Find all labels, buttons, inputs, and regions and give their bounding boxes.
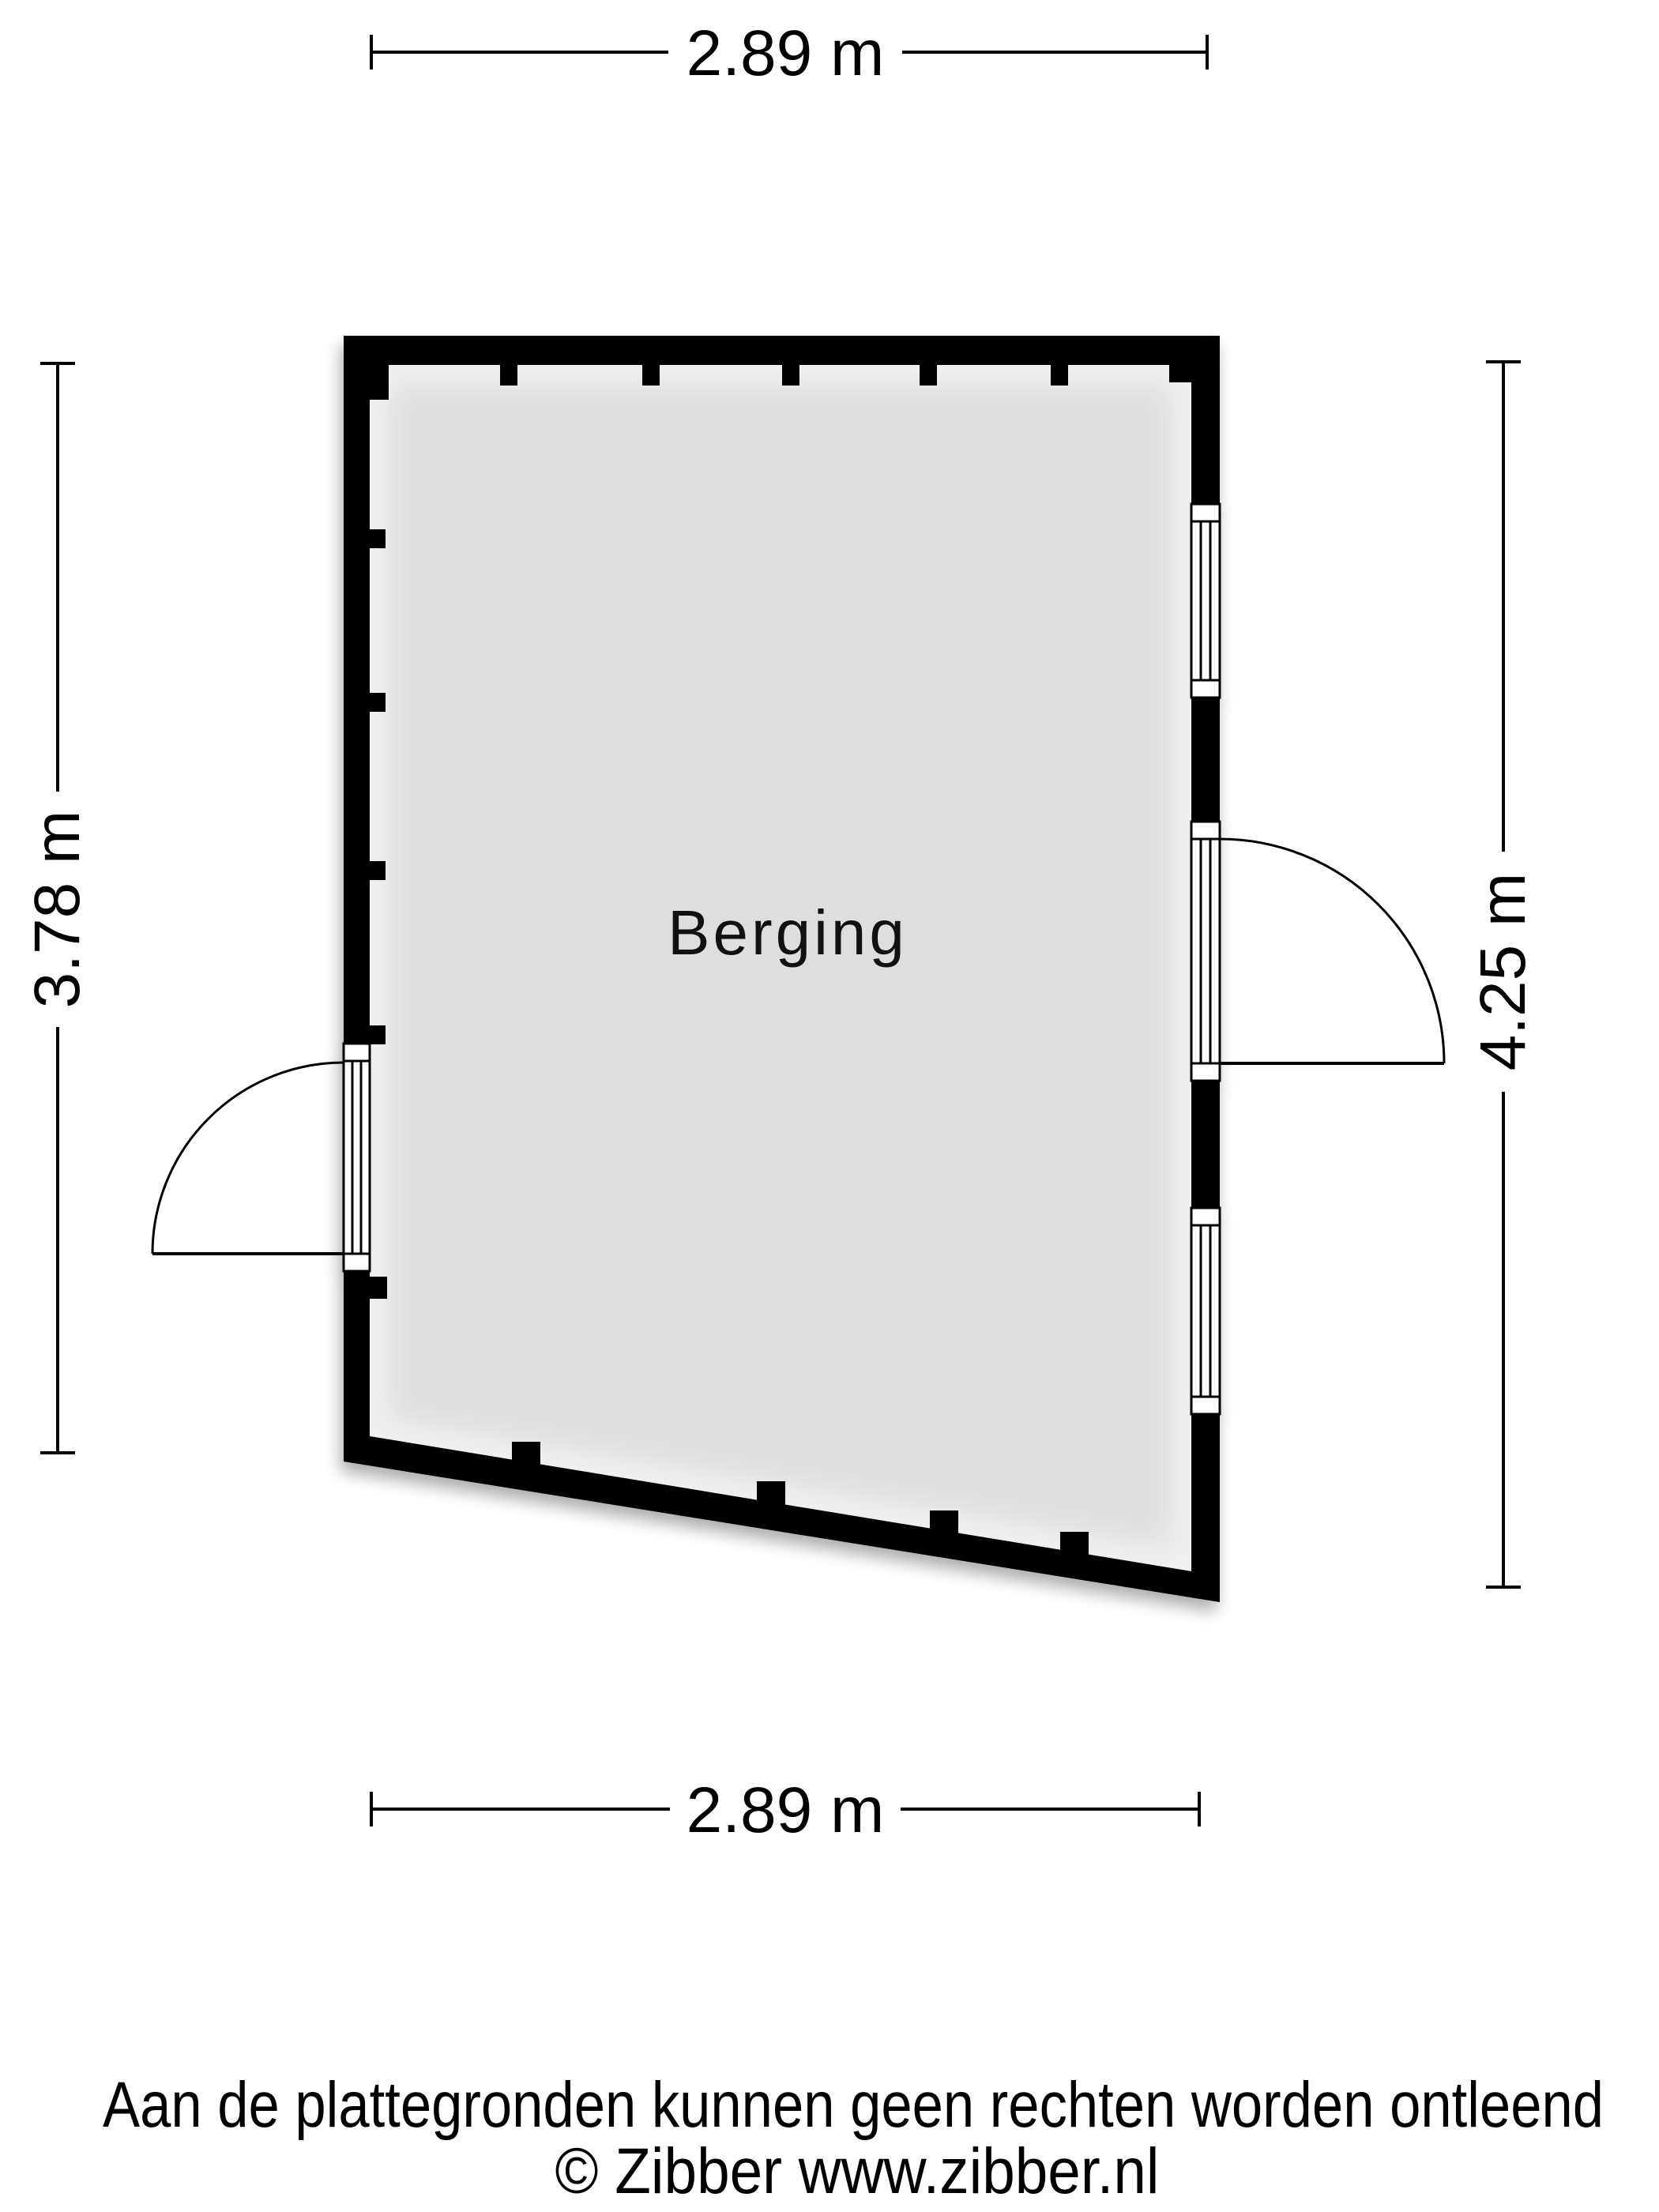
dimension-left-label: 3.78 m <box>21 811 93 1009</box>
building <box>344 336 1220 1602</box>
floorplan-page: Berging 2.89 m 2.89 m 3.78 m 4.25 m Aan … <box>0 0 1659 2212</box>
dimension-bottom-label: 2.89 m <box>687 1774 885 1846</box>
wall-tooth <box>370 1277 387 1299</box>
wall-tooth <box>757 1481 785 1505</box>
wall-tooth <box>920 365 937 386</box>
dimension-right: 4.25 m <box>1467 362 1539 1587</box>
window-right-top <box>1191 504 1220 698</box>
wall-tooth <box>1060 1532 1089 1556</box>
wall-tooth <box>512 1442 540 1465</box>
wall-tooth <box>500 365 517 386</box>
dimension-top: 2.89 m <box>371 17 1207 89</box>
dimension-left: 3.78 m <box>21 363 93 1453</box>
wall-tooth <box>370 693 386 712</box>
wall-tooth <box>370 529 386 548</box>
footer-disclaimer: Aan de plattegronden kunnen geen rechten… <box>103 2069 1604 2141</box>
wall-tooth <box>1051 365 1068 386</box>
footer-copyright: © Zibber www.zibber.nl <box>555 2135 1160 2207</box>
dimension-right-label: 4.25 m <box>1467 873 1539 1071</box>
room-floor <box>370 365 1191 1571</box>
window-right-bottom <box>1191 1208 1220 1414</box>
wall-tooth <box>782 365 799 386</box>
wall-tooth <box>642 365 660 386</box>
door-swing-right <box>1220 839 1444 1063</box>
door-left <box>344 1044 370 1271</box>
wall-tooth <box>370 861 386 880</box>
wall-tooth <box>1169 365 1191 382</box>
dimension-top-label: 2.89 m <box>687 17 885 89</box>
room-label: Berging <box>668 897 908 968</box>
floorplan-canvas: Berging 2.89 m 2.89 m 3.78 m 4.25 m Aan … <box>0 0 1659 2212</box>
door-swing-left <box>152 1063 344 1254</box>
footer: Aan de plattegronden kunnen geen rechten… <box>103 2069 1604 2207</box>
door-right <box>1191 822 1220 1081</box>
wall-tooth <box>370 1025 386 1044</box>
wall-tooth <box>370 365 389 400</box>
wall-tooth <box>930 1510 958 1534</box>
dimension-bottom: 2.89 m <box>371 1774 1199 1846</box>
